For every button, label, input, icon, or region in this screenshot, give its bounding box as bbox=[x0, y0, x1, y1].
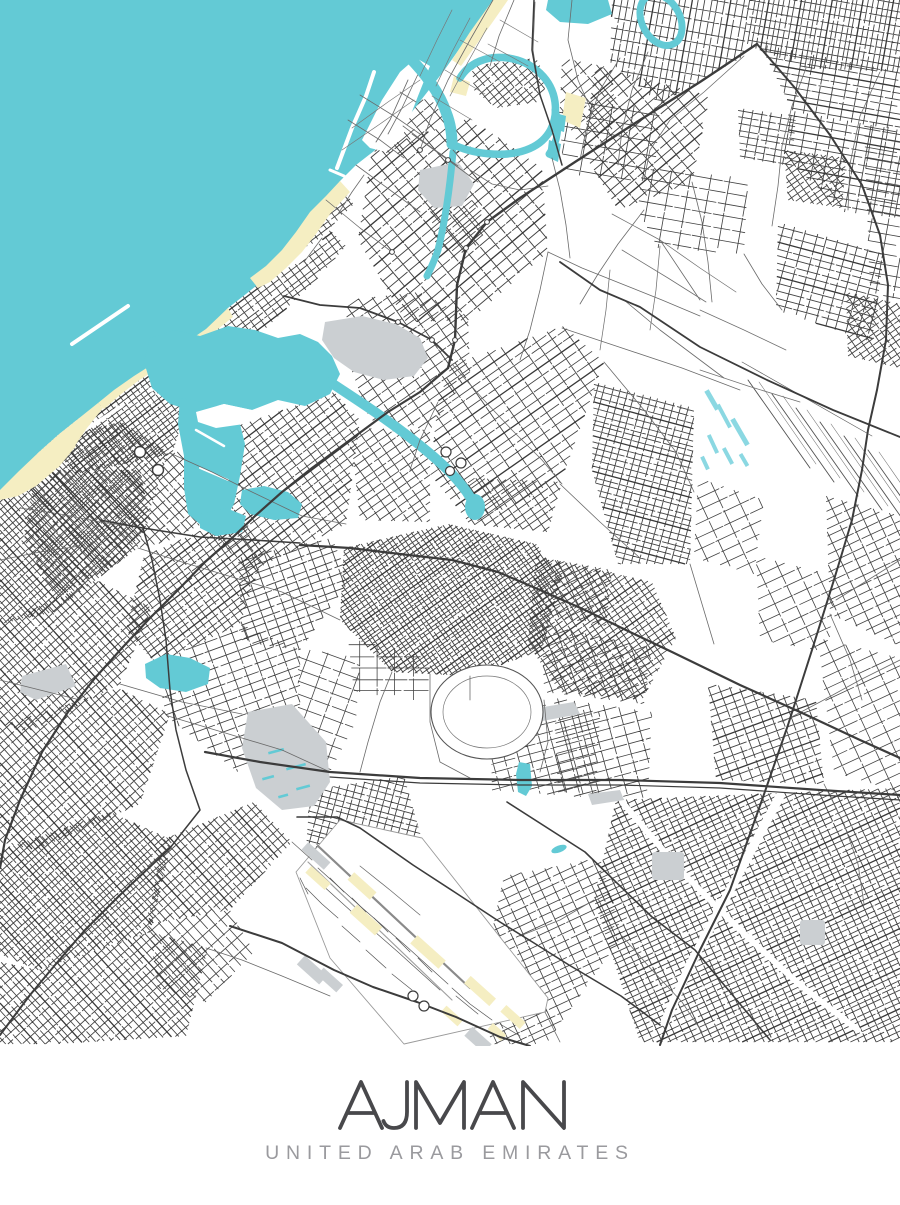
svg-text:UNITED ARAB EMIRATES: UNITED ARAB EMIRATES bbox=[265, 1142, 635, 1164]
